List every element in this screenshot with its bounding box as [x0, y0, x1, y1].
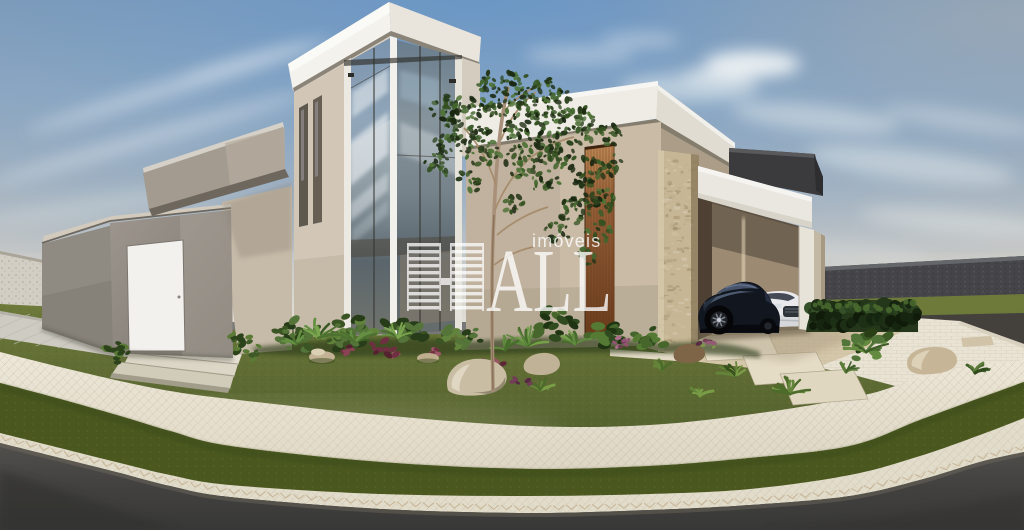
svg-text:ALL: ALL	[486, 232, 612, 331]
